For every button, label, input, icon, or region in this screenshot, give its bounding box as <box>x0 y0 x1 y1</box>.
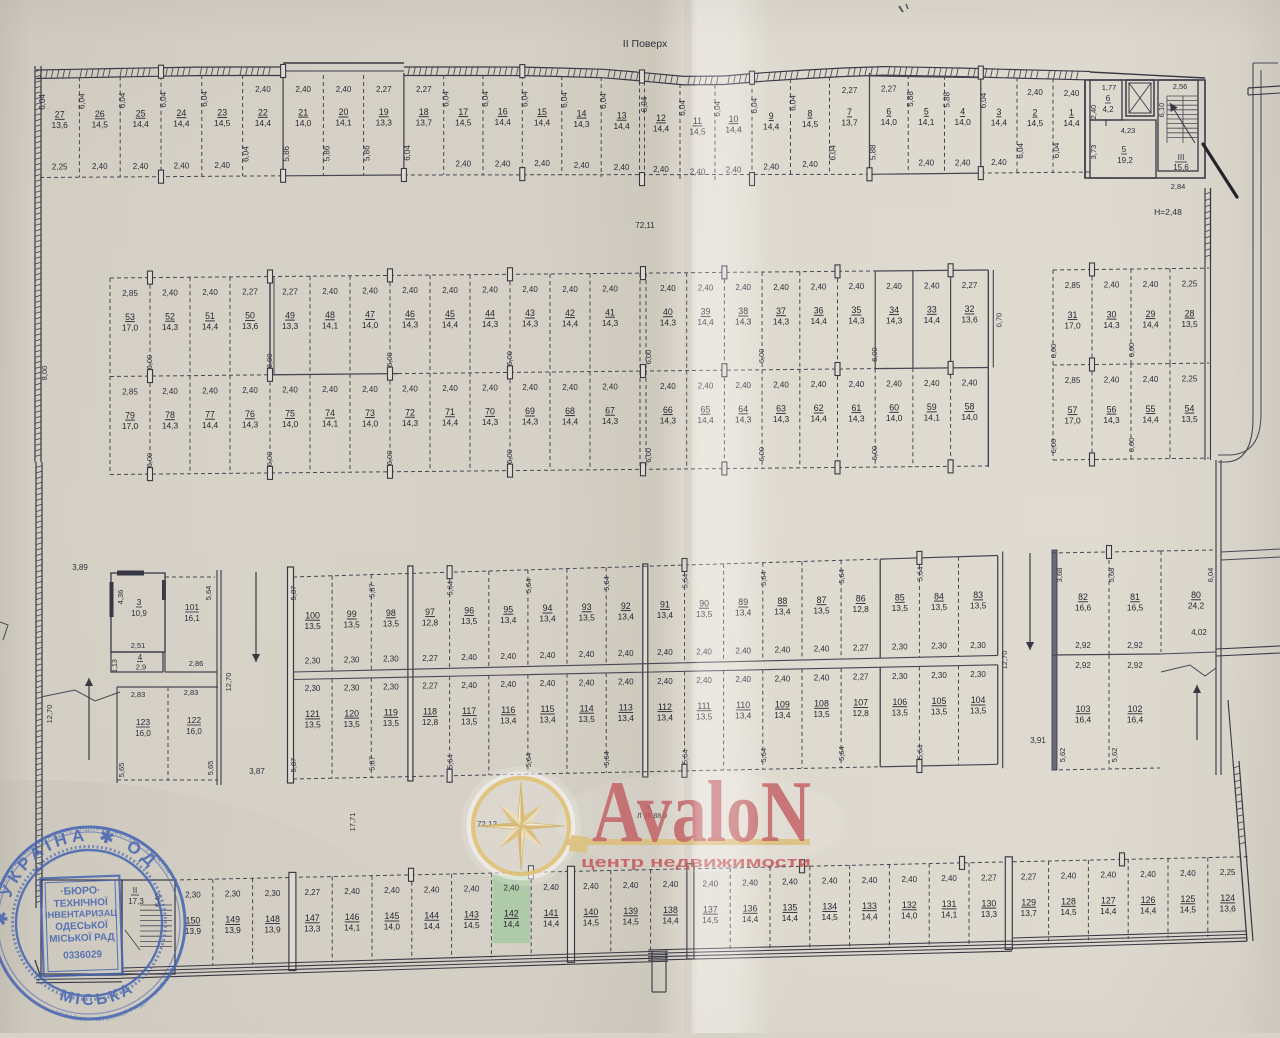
svg-text:36: 36 <box>814 306 824 316</box>
svg-text:127: 127 <box>1101 896 1116 906</box>
svg-text:2,40: 2,40 <box>583 882 599 891</box>
svg-text:5: 5 <box>924 107 929 117</box>
svg-text:126: 126 <box>1141 895 1156 905</box>
svg-text:2,40: 2,40 <box>174 162 190 171</box>
svg-text:6: 6 <box>886 106 891 116</box>
svg-text:5,88: 5,88 <box>869 144 878 160</box>
svg-text:13,6: 13,6 <box>242 321 259 331</box>
svg-text:103: 103 <box>1076 704 1091 714</box>
svg-text:13,4: 13,4 <box>500 716 517 726</box>
svg-text:2,40: 2,40 <box>162 387 178 396</box>
svg-text:18: 18 <box>419 107 429 117</box>
svg-text:142: 142 <box>504 909 519 919</box>
svg-text:58: 58 <box>965 402 975 412</box>
svg-text:2,30: 2,30 <box>344 656 360 665</box>
svg-text:2: 2 <box>1033 107 1038 117</box>
svg-text:16,4: 16,4 <box>1075 715 1092 725</box>
svg-text:2,40: 2,40 <box>214 161 230 170</box>
svg-text:13,3: 13,3 <box>282 321 299 331</box>
svg-text:147: 147 <box>305 913 320 923</box>
svg-text:5: 5 <box>1122 144 1127 154</box>
svg-text:5,64: 5,64 <box>446 754 455 769</box>
svg-text:98: 98 <box>386 608 396 618</box>
svg-text:2,27: 2,27 <box>881 85 897 94</box>
svg-text:12,8: 12,8 <box>853 604 870 614</box>
svg-text:117: 117 <box>462 706 476 716</box>
svg-text:6,00: 6,00 <box>145 453 154 468</box>
svg-text:99: 99 <box>347 609 357 619</box>
svg-text:101: 101 <box>185 602 199 612</box>
svg-text:2,40: 2,40 <box>775 645 791 654</box>
svg-text:81: 81 <box>1130 592 1140 602</box>
svg-text:6,04: 6,04 <box>520 91 529 107</box>
svg-text:2,30: 2,30 <box>892 643 908 652</box>
svg-text:16,1: 16,1 <box>184 614 200 623</box>
svg-text:6,04: 6,04 <box>560 92 569 108</box>
svg-text:19: 19 <box>379 107 389 117</box>
svg-text:13,5: 13,5 <box>970 601 987 611</box>
svg-text:2,40: 2,40 <box>773 381 789 390</box>
svg-text:48: 48 <box>325 310 335 320</box>
svg-text:2,40: 2,40 <box>322 385 338 394</box>
svg-text:6,00: 6,00 <box>1127 343 1136 358</box>
svg-text:60: 60 <box>889 403 899 413</box>
svg-text:6,00: 6,00 <box>870 446 879 461</box>
svg-text:5,64: 5,64 <box>524 753 533 768</box>
svg-text:14,3: 14,3 <box>402 320 419 330</box>
svg-text:14,3: 14,3 <box>602 416 619 426</box>
svg-text:2,40: 2,40 <box>657 677 673 686</box>
svg-text:6,04: 6,04 <box>1016 142 1025 158</box>
svg-text:13,4: 13,4 <box>618 713 635 723</box>
svg-text:8,00: 8,00 <box>40 366 49 381</box>
svg-text:2,40: 2,40 <box>814 645 830 654</box>
svg-text:13,5: 13,5 <box>931 707 948 717</box>
svg-text:2,40: 2,40 <box>1064 89 1080 98</box>
svg-text:2,40: 2,40 <box>461 653 477 662</box>
svg-text:14,1: 14,1 <box>322 419 339 429</box>
svg-text:13,9: 13,9 <box>185 926 202 936</box>
svg-text:10,9: 10,9 <box>131 609 147 618</box>
svg-text:2,40: 2,40 <box>955 158 971 167</box>
svg-text:6,04: 6,04 <box>242 146 251 162</box>
svg-text:17,0: 17,0 <box>122 322 139 332</box>
svg-text:2,40: 2,40 <box>1061 872 1077 881</box>
svg-text:14,3: 14,3 <box>773 414 790 424</box>
svg-text:13,3: 13,3 <box>376 118 393 128</box>
svg-text:5,64: 5,64 <box>837 746 846 761</box>
svg-text:14,5: 14,5 <box>583 917 600 927</box>
svg-text:70: 70 <box>485 407 495 417</box>
svg-text:112: 112 <box>658 702 672 712</box>
svg-text:44: 44 <box>485 309 495 319</box>
svg-text:2,85: 2,85 <box>122 387 138 396</box>
svg-text:14,3: 14,3 <box>482 319 499 329</box>
svg-text:14,4: 14,4 <box>132 119 149 129</box>
svg-text:2,25: 2,25 <box>1220 868 1236 877</box>
svg-text:14,5: 14,5 <box>623 917 640 927</box>
svg-text:6,04: 6,04 <box>640 96 649 112</box>
svg-text:6,00: 6,00 <box>385 352 394 367</box>
svg-text:13,5: 13,5 <box>383 718 400 728</box>
svg-text:14,5: 14,5 <box>455 117 472 127</box>
svg-text:6,04: 6,04 <box>38 94 47 110</box>
svg-text:14,5: 14,5 <box>822 912 839 922</box>
svg-text:113: 113 <box>619 703 633 713</box>
svg-text:14,4: 14,4 <box>653 124 670 134</box>
svg-text:59: 59 <box>927 402 937 412</box>
svg-text:4,2: 4,2 <box>1102 105 1114 114</box>
svg-text:2,40: 2,40 <box>464 885 480 894</box>
svg-text:14,3: 14,3 <box>848 413 865 423</box>
svg-text:35: 35 <box>852 305 862 315</box>
svg-text:2,86: 2,86 <box>189 659 204 668</box>
svg-text:4,02: 4,02 <box>1191 628 1207 637</box>
svg-text:6,04: 6,04 <box>403 145 412 161</box>
svg-text:2,40: 2,40 <box>886 380 902 389</box>
svg-text:13,3: 13,3 <box>304 924 321 934</box>
svg-text:14,4: 14,4 <box>562 416 579 426</box>
svg-text:2,40: 2,40 <box>344 887 360 896</box>
svg-text:ІІ Поверх: ІІ Поверх <box>623 38 668 50</box>
svg-text:2,40: 2,40 <box>919 159 935 168</box>
svg-text:63: 63 <box>776 404 786 414</box>
svg-text:2,56: 2,56 <box>1173 82 1188 91</box>
svg-text:119: 119 <box>384 708 398 718</box>
svg-text:37: 37 <box>776 306 786 316</box>
svg-text:13,5: 13,5 <box>344 719 361 729</box>
svg-text:13,7: 13,7 <box>1021 908 1038 918</box>
svg-text:12,70: 12,70 <box>224 673 233 692</box>
svg-text:7: 7 <box>847 107 852 117</box>
svg-text:13,5: 13,5 <box>304 720 321 730</box>
svg-text:13,5: 13,5 <box>1181 414 1198 424</box>
svg-text:2,40: 2,40 <box>362 287 378 296</box>
svg-text:2,40: 2,40 <box>295 85 311 94</box>
svg-text:2,40: 2,40 <box>902 875 918 884</box>
svg-text:145: 145 <box>385 911 400 921</box>
svg-text:78: 78 <box>165 410 175 420</box>
svg-text:2,40: 2,40 <box>618 649 634 658</box>
svg-text:2,83: 2,83 <box>184 688 199 697</box>
svg-text:40: 40 <box>663 307 673 317</box>
svg-text:27: 27 <box>55 110 65 120</box>
svg-text:13,5: 13,5 <box>578 613 595 623</box>
svg-text:14,4: 14,4 <box>1142 319 1159 329</box>
svg-text:2,83: 2,83 <box>131 690 146 699</box>
svg-text:46: 46 <box>405 309 415 319</box>
svg-text:2,40: 2,40 <box>322 287 338 296</box>
svg-text:24: 24 <box>177 108 187 118</box>
svg-text:3: 3 <box>996 107 1001 117</box>
svg-text:14,4: 14,4 <box>1142 414 1159 424</box>
svg-text:129: 129 <box>1021 897 1036 907</box>
svg-text:·БЮРО·: ·БЮРО· <box>60 884 101 897</box>
svg-text:14,0: 14,0 <box>384 922 401 932</box>
svg-text:104: 104 <box>971 695 986 705</box>
svg-text:2,40: 2,40 <box>242 386 258 395</box>
svg-text:53: 53 <box>125 312 135 322</box>
svg-text:2,27: 2,27 <box>422 682 438 691</box>
svg-text:3,87: 3,87 <box>249 767 265 776</box>
svg-text:2,40: 2,40 <box>1101 871 1117 880</box>
svg-text:143: 143 <box>464 910 479 920</box>
svg-text:2,40: 2,40 <box>773 283 789 292</box>
svg-text:2,40: 2,40 <box>543 883 559 892</box>
svg-text:14,0: 14,0 <box>881 117 898 127</box>
svg-text:13,4: 13,4 <box>657 610 674 620</box>
svg-text:14,3: 14,3 <box>573 119 590 129</box>
svg-text:13,4: 13,4 <box>618 611 635 621</box>
svg-text:5,86: 5,86 <box>363 145 372 161</box>
svg-text:2,92: 2,92 <box>1127 661 1143 670</box>
svg-text:15,6: 15,6 <box>1173 163 1189 172</box>
svg-text:2,40: 2,40 <box>562 383 578 392</box>
svg-text:0,70: 0,70 <box>994 313 1003 328</box>
svg-text:13,6: 13,6 <box>1220 904 1237 914</box>
svg-text:6,00: 6,00 <box>644 350 653 365</box>
svg-text:144: 144 <box>424 910 439 920</box>
svg-text:2,40: 2,40 <box>442 286 458 295</box>
svg-text:49: 49 <box>285 310 295 320</box>
svg-text:4: 4 <box>138 653 143 662</box>
svg-text:2,40: 2,40 <box>775 674 791 683</box>
svg-text:13,5: 13,5 <box>461 616 478 626</box>
svg-text:2,40: 2,40 <box>579 650 595 659</box>
svg-text:2,40: 2,40 <box>653 165 669 174</box>
svg-text:14,0: 14,0 <box>886 413 903 423</box>
svg-text:91: 91 <box>660 600 670 610</box>
svg-text:12,8: 12,8 <box>422 617 439 627</box>
svg-text:2,85: 2,85 <box>1065 281 1081 290</box>
svg-text:2,40: 2,40 <box>424 885 440 894</box>
svg-text:5,88: 5,88 <box>943 91 952 107</box>
svg-text:14: 14 <box>577 108 587 118</box>
svg-text:13,6: 13,6 <box>961 315 978 325</box>
svg-text:2,51: 2,51 <box>131 641 146 650</box>
svg-text:6,04: 6,04 <box>1206 568 1215 583</box>
svg-text:5,64: 5,64 <box>204 586 213 601</box>
svg-text:125: 125 <box>1181 894 1196 904</box>
svg-text:14,0: 14,0 <box>362 320 379 330</box>
svg-text:31: 31 <box>1068 310 1078 320</box>
svg-text:42: 42 <box>565 308 575 318</box>
svg-text:13,5: 13,5 <box>892 603 909 613</box>
svg-text:80: 80 <box>1191 590 1201 600</box>
svg-text:13,7: 13,7 <box>416 117 433 127</box>
svg-text:50: 50 <box>245 311 255 321</box>
svg-text:14,3: 14,3 <box>242 420 259 430</box>
svg-text:2,40: 2,40 <box>811 283 827 292</box>
svg-text:2,40: 2,40 <box>336 85 352 94</box>
svg-text:13,5: 13,5 <box>931 602 948 612</box>
svg-text:16: 16 <box>498 107 508 117</box>
svg-text:13,5: 13,5 <box>1181 319 1198 329</box>
svg-text:132: 132 <box>902 900 917 910</box>
svg-text:6,04: 6,04 <box>789 95 798 111</box>
svg-text:2,30: 2,30 <box>225 890 241 899</box>
svg-text:14,1: 14,1 <box>918 117 935 127</box>
svg-text:13,7: 13,7 <box>841 118 858 128</box>
svg-text:14,1: 14,1 <box>941 910 958 920</box>
svg-text:2,40: 2,40 <box>540 679 556 688</box>
svg-text:2,27: 2,27 <box>853 673 869 682</box>
svg-text:2,27: 2,27 <box>842 86 858 95</box>
svg-text:ІІІ: ІІІ <box>1178 153 1185 162</box>
svg-text:6,04: 6,04 <box>1052 142 1061 158</box>
svg-text:14,4: 14,4 <box>442 418 459 428</box>
svg-text:16,0: 16,0 <box>186 727 202 736</box>
svg-text:23: 23 <box>217 108 227 118</box>
svg-text:6,04: 6,04 <box>481 91 490 107</box>
svg-text:108: 108 <box>814 699 829 709</box>
svg-text:13,5: 13,5 <box>892 707 909 717</box>
svg-text:13,5: 13,5 <box>304 621 321 631</box>
svg-text:134: 134 <box>822 902 837 912</box>
svg-text:2,40: 2,40 <box>941 874 957 883</box>
svg-text:83: 83 <box>973 590 983 600</box>
svg-text:114: 114 <box>580 703 594 713</box>
svg-text:6,04: 6,04 <box>979 92 988 108</box>
svg-text:13,6: 13,6 <box>52 120 69 130</box>
svg-text:14,3: 14,3 <box>660 415 677 425</box>
svg-text:95: 95 <box>503 604 513 614</box>
svg-text:14,4: 14,4 <box>1100 906 1117 916</box>
svg-text:2,40: 2,40 <box>602 284 618 293</box>
svg-text:2,30: 2,30 <box>931 671 947 680</box>
svg-text:56: 56 <box>1107 404 1117 414</box>
svg-text:24,2: 24,2 <box>1188 601 1205 611</box>
svg-text:14,3: 14,3 <box>602 318 619 328</box>
svg-text:74: 74 <box>325 408 335 418</box>
svg-text:14,3: 14,3 <box>1103 320 1120 330</box>
svg-text:14,4: 14,4 <box>543 918 560 928</box>
svg-text:2,25: 2,25 <box>1182 279 1198 288</box>
svg-text:14,1: 14,1 <box>322 321 339 331</box>
svg-text:2,40: 2,40 <box>282 386 298 395</box>
svg-text:14,0: 14,0 <box>901 911 918 921</box>
svg-text:66: 66 <box>663 405 673 415</box>
svg-text:13,9: 13,9 <box>225 925 242 935</box>
svg-text:6,04: 6,04 <box>77 93 86 109</box>
svg-text:13,5: 13,5 <box>970 706 987 716</box>
svg-text:17,0: 17,0 <box>1064 320 1081 330</box>
svg-text:72,11: 72,11 <box>635 221 655 230</box>
svg-text:2,27: 2,27 <box>962 281 978 290</box>
svg-text:14,4: 14,4 <box>1063 118 1080 128</box>
svg-text:107: 107 <box>853 698 868 708</box>
svg-text:2,40: 2,40 <box>540 651 556 660</box>
svg-text:6,00: 6,00 <box>265 353 274 368</box>
svg-text:86: 86 <box>856 594 866 604</box>
svg-text:88: 88 <box>778 596 788 606</box>
svg-text:29: 29 <box>1146 309 1156 319</box>
svg-text:6,00: 6,00 <box>505 449 514 464</box>
svg-text:124: 124 <box>1220 893 1235 903</box>
svg-text:17,0: 17,0 <box>1064 415 1081 425</box>
svg-text:2,40: 2,40 <box>663 880 679 889</box>
svg-text:1: 1 <box>1069 108 1074 118</box>
svg-text:2,30: 2,30 <box>305 684 321 693</box>
svg-text:14,0: 14,0 <box>955 117 972 127</box>
svg-text:14,4: 14,4 <box>255 118 272 128</box>
svg-text:67: 67 <box>605 405 615 415</box>
svg-text:118: 118 <box>423 707 437 717</box>
svg-text:16,5: 16,5 <box>1127 603 1144 613</box>
svg-text:5,62: 5,62 <box>1110 748 1119 763</box>
svg-text:13,4: 13,4 <box>774 607 791 617</box>
svg-text:6,04: 6,04 <box>599 93 608 109</box>
svg-text:2,40: 2,40 <box>482 384 498 393</box>
svg-text:141: 141 <box>544 908 559 918</box>
svg-text:135: 135 <box>783 903 798 913</box>
svg-text:2,30: 2,30 <box>344 683 360 692</box>
svg-text:2,40: 2,40 <box>1104 280 1120 289</box>
svg-text:5,64: 5,64 <box>602 576 611 591</box>
svg-text:13: 13 <box>617 110 627 120</box>
svg-text:2,40: 2,40 <box>862 876 878 885</box>
svg-text:14,0: 14,0 <box>961 412 978 422</box>
svg-text:22: 22 <box>258 108 268 118</box>
svg-text:13,5: 13,5 <box>383 619 400 629</box>
svg-text:14,5: 14,5 <box>1060 907 1077 917</box>
svg-text:2,27: 2,27 <box>416 85 432 94</box>
svg-text:16,6: 16,6 <box>1075 603 1092 613</box>
svg-text:14,4: 14,4 <box>495 117 512 127</box>
svg-text:14,4: 14,4 <box>662 916 679 926</box>
svg-text:2,40: 2,40 <box>657 648 673 657</box>
svg-text:2,27: 2,27 <box>1021 872 1037 881</box>
svg-text:121: 121 <box>305 709 320 719</box>
svg-text:2,40: 2,40 <box>602 382 618 391</box>
svg-text:79: 79 <box>125 410 135 420</box>
svg-text:2,40: 2,40 <box>482 286 498 295</box>
svg-text:13,4: 13,4 <box>500 615 517 625</box>
svg-text:14,3: 14,3 <box>773 316 790 326</box>
svg-text:2,30: 2,30 <box>383 683 399 692</box>
svg-text:14,4: 14,4 <box>503 919 520 929</box>
svg-text:71: 71 <box>445 407 455 417</box>
svg-text:2,25: 2,25 <box>1182 374 1198 383</box>
svg-text:13,4: 13,4 <box>657 712 674 722</box>
svg-text:14,5: 14,5 <box>1027 118 1044 128</box>
svg-text:14,5: 14,5 <box>1180 905 1197 915</box>
svg-text:2,40: 2,40 <box>562 285 578 294</box>
svg-text:12,8: 12,8 <box>422 717 439 727</box>
svg-text:28: 28 <box>1185 308 1195 318</box>
svg-text:5,87: 5,87 <box>367 583 376 598</box>
svg-text:2,40: 2,40 <box>822 877 838 886</box>
svg-text:6,00: 6,00 <box>145 355 154 370</box>
svg-text:2,40: 2,40 <box>579 678 595 687</box>
svg-text:2,40: 2,40 <box>849 380 865 389</box>
svg-text:6,00: 6,00 <box>1049 439 1058 454</box>
svg-text:82: 82 <box>1078 592 1088 602</box>
svg-text:149: 149 <box>225 915 240 925</box>
svg-text:6,00: 6,00 <box>385 450 394 465</box>
svg-text:13,3: 13,3 <box>981 909 998 919</box>
svg-text:14,1: 14,1 <box>344 923 361 933</box>
svg-text:3,89: 3,89 <box>72 563 88 572</box>
svg-text:6,04: 6,04 <box>118 92 127 108</box>
svg-text:14,1: 14,1 <box>335 118 352 128</box>
svg-text:6,04: 6,04 <box>442 91 451 107</box>
svg-text:16,0: 16,0 <box>135 729 151 738</box>
svg-text:84: 84 <box>934 591 944 601</box>
svg-text:2,30: 2,30 <box>383 655 399 664</box>
svg-text:5,87: 5,87 <box>289 586 298 601</box>
svg-text:2,40: 2,40 <box>202 288 218 297</box>
